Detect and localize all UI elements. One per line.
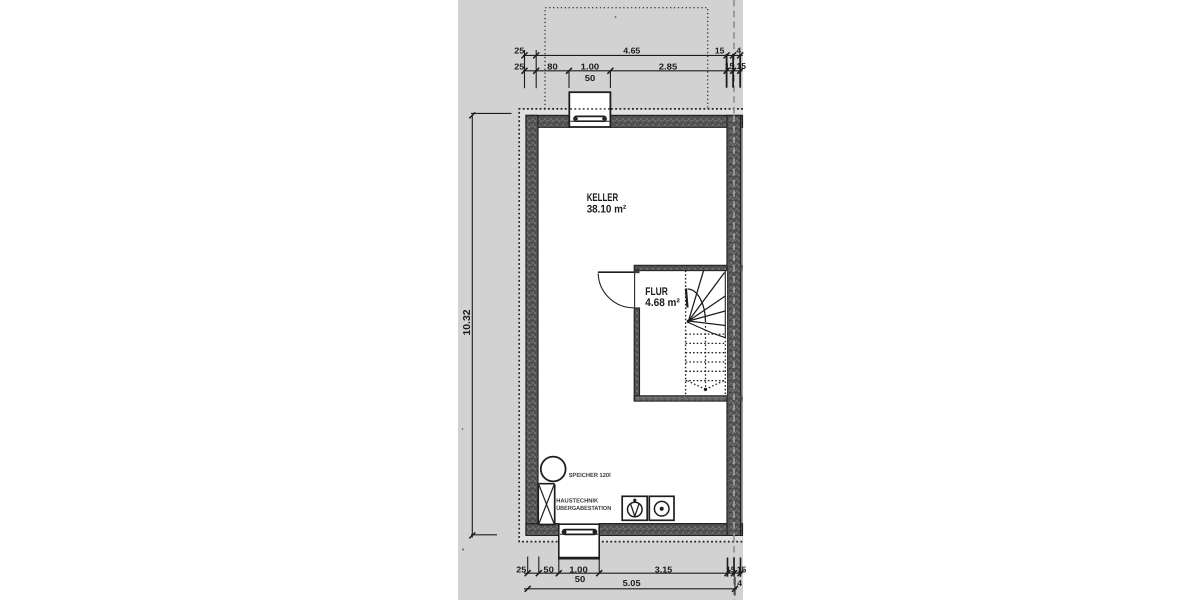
svg-text:KELLER: KELLER bbox=[587, 192, 619, 204]
svg-text:5.05: 5.05 bbox=[623, 578, 641, 588]
svg-text:ÜBERGABESTATION: ÜBERGABESTATION bbox=[556, 504, 611, 512]
svg-text:50: 50 bbox=[543, 565, 554, 575]
svg-text:25: 25 bbox=[514, 61, 524, 71]
svg-text:10.32: 10.32 bbox=[462, 309, 473, 335]
svg-text:15: 15 bbox=[715, 46, 725, 56]
svg-text:25: 25 bbox=[514, 46, 524, 56]
svg-text:50: 50 bbox=[585, 73, 596, 83]
svg-text:SPEICHER 120l: SPEICHER 120l bbox=[569, 472, 611, 479]
svg-text:4.68 m²: 4.68 m² bbox=[645, 297, 680, 309]
svg-text:15: 15 bbox=[726, 564, 736, 574]
svg-text:2.85: 2.85 bbox=[659, 61, 678, 71]
svg-text:15: 15 bbox=[737, 61, 747, 71]
svg-text:3.15: 3.15 bbox=[655, 565, 673, 575]
svg-text:25: 25 bbox=[516, 565, 526, 575]
svg-text:4: 4 bbox=[737, 578, 742, 588]
svg-text:4.65: 4.65 bbox=[623, 46, 640, 56]
svg-text:HAUSTECHNIK: HAUSTECHNIK bbox=[556, 497, 599, 504]
svg-text:FLUR: FLUR bbox=[645, 286, 668, 298]
svg-text:15: 15 bbox=[737, 564, 747, 574]
svg-text:15: 15 bbox=[725, 61, 735, 71]
svg-text:38.10 m²: 38.10 m² bbox=[587, 204, 627, 216]
svg-text:1.00: 1.00 bbox=[581, 61, 600, 71]
svg-text:1.00: 1.00 bbox=[569, 564, 588, 574]
svg-text:4: 4 bbox=[736, 46, 741, 56]
svg-text:80: 80 bbox=[547, 61, 558, 71]
svg-text:50: 50 bbox=[575, 574, 586, 584]
